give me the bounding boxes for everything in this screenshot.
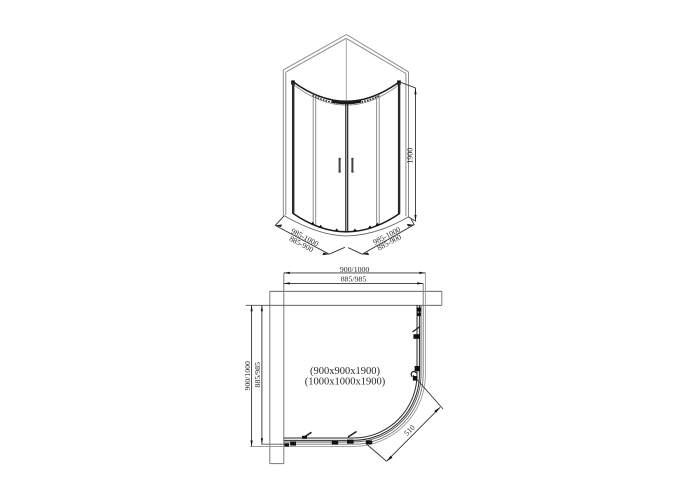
- svg-text:(1000x1000x1900): (1000x1000x1900): [305, 377, 386, 388]
- svg-text:1900: 1900: [406, 148, 415, 164]
- svg-text:900/1000: 900/1000: [243, 361, 252, 391]
- svg-text:(900x900x1900): (900x900x1900): [310, 366, 380, 377]
- svg-text:885/985: 885/985: [341, 275, 367, 284]
- svg-text:900/1000: 900/1000: [340, 265, 370, 274]
- svg-text:885/985: 885/985: [253, 362, 262, 388]
